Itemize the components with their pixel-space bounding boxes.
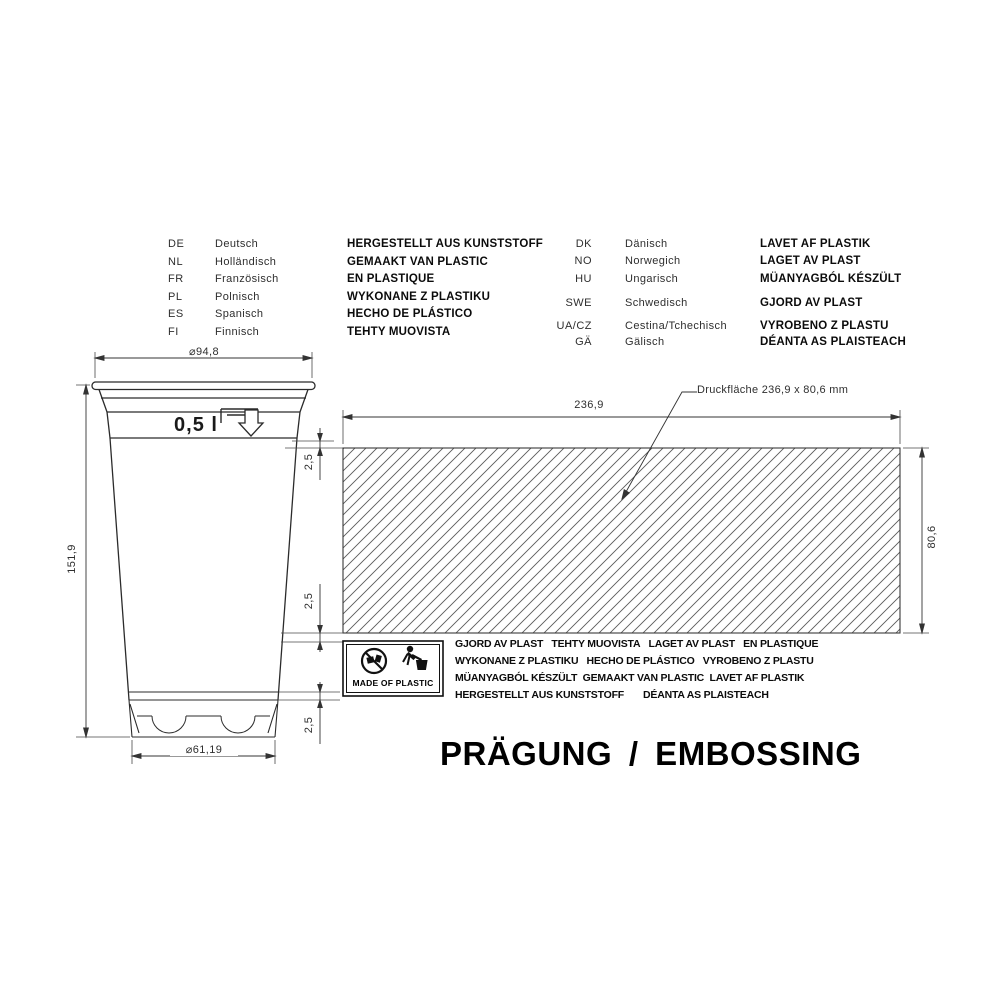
dim-bottom-diameter: ⌀61,19 <box>170 743 238 756</box>
language-name: Deutsch <box>215 238 347 250</box>
cup-body <box>110 438 297 700</box>
language-name: Finnisch <box>215 326 347 338</box>
language-name: Cestina/Tchechisch <box>625 320 760 332</box>
language-code: PL <box>168 291 215 303</box>
language-phrase: LAVET AF PLASTIK <box>760 238 871 250</box>
language-phrase: GEMAAKT VAN PLASTIC <box>347 256 488 268</box>
language-phrase: TEHTY MUOVISTA <box>347 326 450 338</box>
language-code: GÄ <box>550 336 592 348</box>
language-row: DEDeutschHERGESTELLT AUS KUNSTSTOFF <box>168 234 543 248</box>
language-code: DE <box>168 238 215 250</box>
language-name: Ungarisch <box>625 273 760 285</box>
embossing-line-4: HERGESTELLT AUS KUNSTSTOFF DÉANTA AS PLA… <box>455 689 875 701</box>
language-code: NO <box>550 255 592 267</box>
language-row: PLPolnischWYKONANE Z PLASTIKU <box>168 287 490 301</box>
print-area-hatch <box>343 448 900 633</box>
cup-lower-bead <box>128 692 279 700</box>
language-name: Französisch <box>215 273 347 285</box>
language-row: ESSpanischHECHO DE PLÁSTICO <box>168 304 472 318</box>
language-phrase: GJORD AV PLAST <box>760 297 862 309</box>
language-code: NL <box>168 256 215 268</box>
language-code: HU <box>550 273 592 285</box>
print-area <box>343 448 900 633</box>
language-code: UA/CZ <box>550 320 592 332</box>
language-row: NONorwegichLAGET AV PLAST <box>550 251 861 265</box>
language-name: Gälisch <box>625 336 760 348</box>
language-code: FR <box>168 273 215 285</box>
dim-print-height: 80,6 <box>926 515 938 559</box>
print-area-label: Druckfläche 236,9 x 80,6 mm <box>697 384 848 396</box>
language-name: Holländisch <box>215 256 347 268</box>
fill-level-mark <box>221 409 263 436</box>
technical-drawing-page: DEDeutschHERGESTELLT AUS KUNSTSTOFF NLHo… <box>0 0 1000 1000</box>
language-phrase: EN PLASTIQUE <box>347 273 434 285</box>
language-row: GÄGälischDÉANTA AS PLAISTEACH <box>550 332 906 346</box>
language-phrase: HECHO DE PLÁSTICO <box>347 308 472 320</box>
language-code: FI <box>168 326 215 338</box>
language-row: FIFinnischTEHTY MUOVISTA <box>168 322 450 336</box>
cup-volume-label: 0,5 l <box>170 414 222 437</box>
dim-top-diameter: ⌀94,8 <box>169 345 239 358</box>
language-code: DK <box>550 238 592 250</box>
language-name: Schwedisch <box>625 297 760 309</box>
language-row: FRFranzösischEN PLASTIQUE <box>168 269 434 283</box>
language-name: Polnisch <box>215 291 347 303</box>
dim-offset-top: 2,5 <box>303 440 315 484</box>
language-phrase: VYROBENO Z PLASTU <box>760 320 889 332</box>
dim-offset-mid: 2,5 <box>303 579 315 623</box>
dim-height: 151,9 <box>66 537 78 581</box>
made-of-plastic-badge-text: MADE OF PLASTIC <box>348 678 438 688</box>
cup-foot-scallops <box>137 716 270 733</box>
embossing-line-2: WYKONANE Z PLASTIKU HECHO DE PLÁSTICO VY… <box>455 655 875 667</box>
language-phrase: DÉANTA AS PLAISTEACH <box>760 336 906 348</box>
language-code: ES <box>168 308 215 320</box>
language-code: SWE <box>550 297 592 309</box>
cup-rim <box>92 382 315 390</box>
cup-collar <box>99 390 308 413</box>
language-phrase: HERGESTELLT AUS KUNSTSTOFF <box>347 238 543 250</box>
language-name: Spanisch <box>215 308 347 320</box>
cup-foot <box>129 700 278 737</box>
page-title: PRÄGUNG / EMBOSSING <box>440 735 860 773</box>
language-row: DKDänischLAVET AF PLASTIK <box>550 234 871 248</box>
embossing-line-3: MÜANYAGBÓL KÉSZÜLT GEMAAKT VAN PLASTIC L… <box>455 672 875 684</box>
dim-print-width: 236,9 <box>559 399 619 411</box>
language-phrase: WYKONANE Z PLASTIKU <box>347 291 490 303</box>
language-row: NLHolländischGEMAAKT VAN PLASTIC <box>168 252 488 266</box>
language-row: HUUngarischMÜANYAGBÓL KÉSZÜLT <box>550 269 901 283</box>
language-name: Dänisch <box>625 238 760 250</box>
embossing-line-1: GJORD AV PLAST TEHTY MUOVISTA LAGET AV P… <box>455 638 875 650</box>
language-name: Norwegich <box>625 255 760 267</box>
technical-drawing-canvas <box>0 0 1000 1000</box>
fill-level-arrow-icon <box>239 410 263 436</box>
language-row: UA/CZCestina/TchechischVYROBENO Z PLASTU <box>550 316 889 330</box>
dim-offset-bottom: 2,5 <box>303 703 315 747</box>
language-phrase: LAGET AV PLAST <box>760 255 861 267</box>
language-row: SWESchwedischGJORD AV PLAST <box>550 293 862 307</box>
language-phrase: MÜANYAGBÓL KÉSZÜLT <box>760 273 901 285</box>
